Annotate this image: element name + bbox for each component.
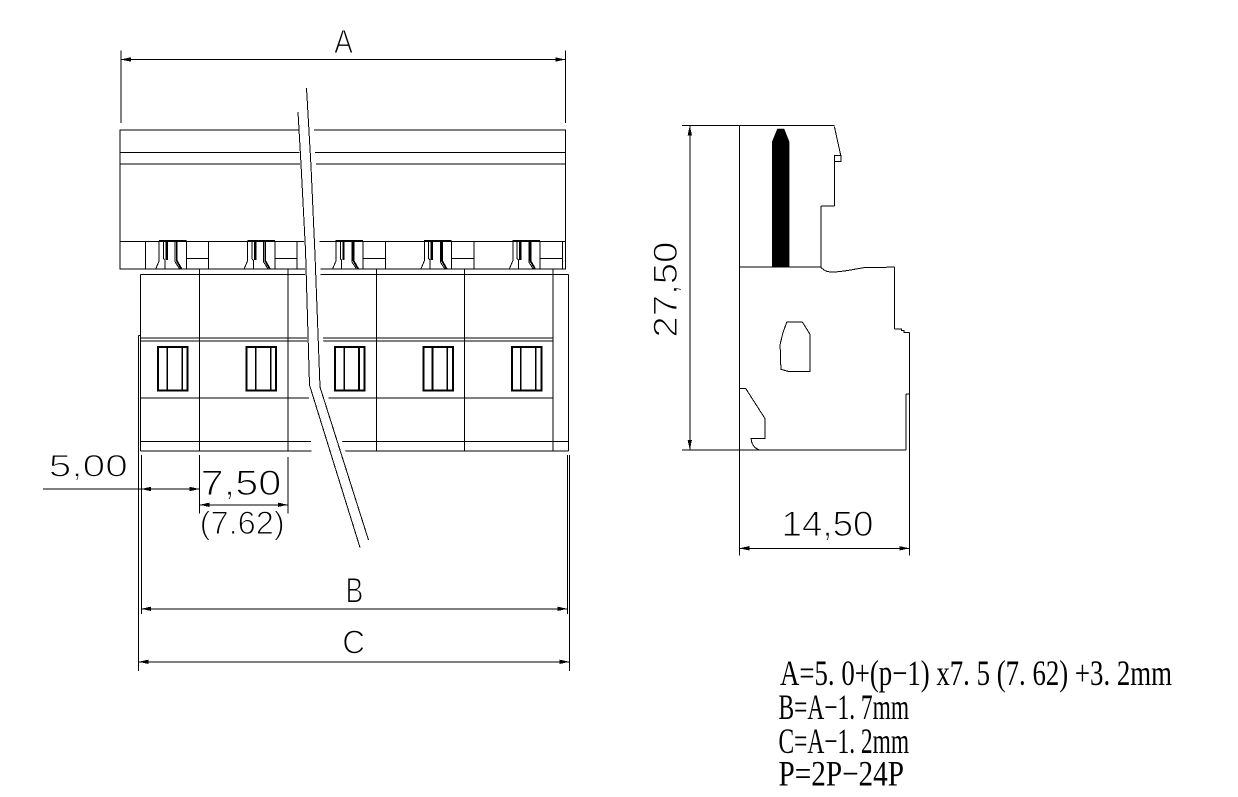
svg-text:7,50: 7,50 — [201, 464, 282, 503]
svg-text:14,50: 14,50 — [782, 504, 874, 544]
svg-text:B: B — [346, 572, 364, 611]
svg-text:P=2P−24P: P=2P−24P — [779, 754, 905, 794]
svg-text:C: C — [342, 624, 365, 661]
svg-text:5,00: 5,00 — [49, 448, 128, 484]
svg-text:27,50: 27,50 — [647, 242, 685, 338]
svg-text:A: A — [334, 24, 353, 61]
svg-text:(7.62): (7.62) — [200, 505, 285, 541]
